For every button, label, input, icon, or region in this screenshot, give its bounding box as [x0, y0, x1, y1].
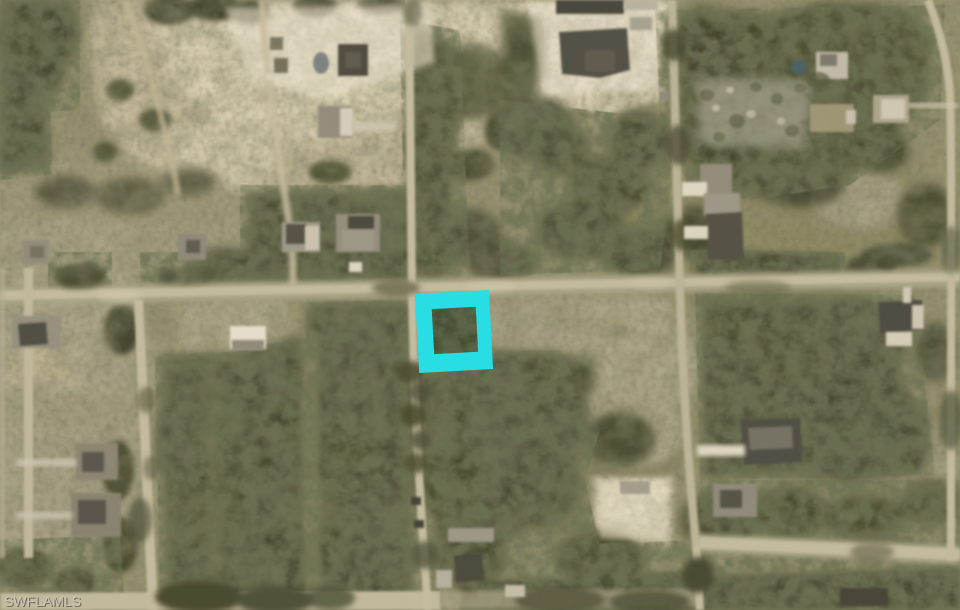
svg-text:SWFLAMLS: SWFLAMLS	[4, 593, 81, 609]
